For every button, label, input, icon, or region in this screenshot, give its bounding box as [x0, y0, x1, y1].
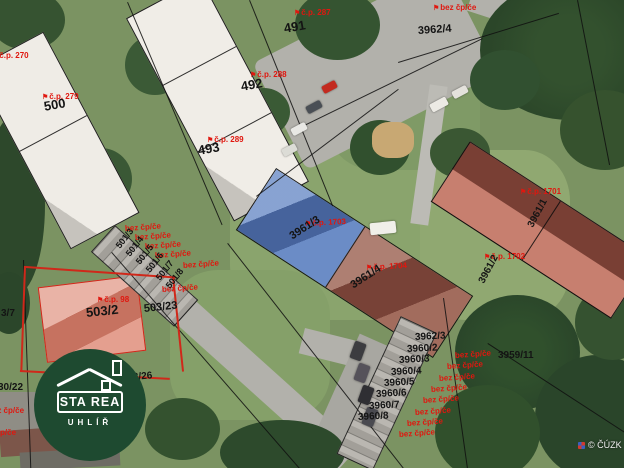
map-copyright: © ČÚZK: [578, 440, 622, 450]
label-parcel-3959-11: 3959/11: [498, 351, 534, 361]
label-parcel-3962-3: 3962/3: [415, 331, 446, 343]
playground: [372, 122, 414, 158]
label-parcel-493: 493: [197, 140, 221, 157]
label-parcel-3960-3: 3960/3: [399, 354, 430, 366]
label-parcel-3962-4: 3962/4: [418, 24, 452, 37]
tree-canopy: [145, 398, 220, 460]
label-bez-cpce: bez čp/če: [399, 428, 435, 438]
label-bez-cpce: ⚑bez čp/če: [433, 4, 476, 12]
chimney-icon: [112, 360, 122, 376]
house-number-flag-icon: ⚑: [294, 10, 300, 17]
house-icon: [34, 349, 146, 391]
label-cp-1701: ⚑č.p. 1701: [520, 188, 561, 196]
label-bez-cpce: bez čp/če: [0, 429, 16, 437]
label-bez-cpce: bez čp/če: [0, 407, 24, 415]
label-cp-287: ⚑č.p. 287: [294, 9, 331, 17]
label-parcel-491: 491: [283, 18, 307, 35]
tree-canopy: [470, 50, 540, 110]
label-parcel-503-7: 3/7: [1, 309, 15, 319]
label-parcel-500: 500: [43, 96, 67, 113]
label-parcel-503-2: 503/2: [85, 303, 119, 319]
door-icon: [101, 380, 111, 391]
sta-rea-uhlir-logo: STA REA UHLÍŘ: [34, 349, 146, 461]
label-parcel-30-22: 30/22: [0, 383, 23, 393]
label-bez-cpce: bez čp/če: [183, 259, 219, 269]
logo-brand-subtitle: UHLÍŘ: [68, 418, 112, 427]
cuzk-logo-icon: [578, 442, 585, 449]
label-parcel-3960-6: 3960/6: [376, 388, 407, 400]
house-number-flag-icon: ⚑: [520, 189, 526, 196]
aerial-cadastral-map[interactable]: ⚑č.p. 270 ⚑č.p. 279 ⚑č.p. 287 ⚑č.p. 288 …: [0, 0, 624, 468]
label-cp-270: ⚑č.p. 270: [0, 52, 29, 60]
logo-brand-name: STA REA: [57, 391, 123, 413]
house-number-flag-icon: ⚑: [433, 5, 439, 12]
label-parcel-492: 492: [240, 76, 264, 93]
label-parcel-3960-8: 3960/8: [358, 411, 389, 423]
